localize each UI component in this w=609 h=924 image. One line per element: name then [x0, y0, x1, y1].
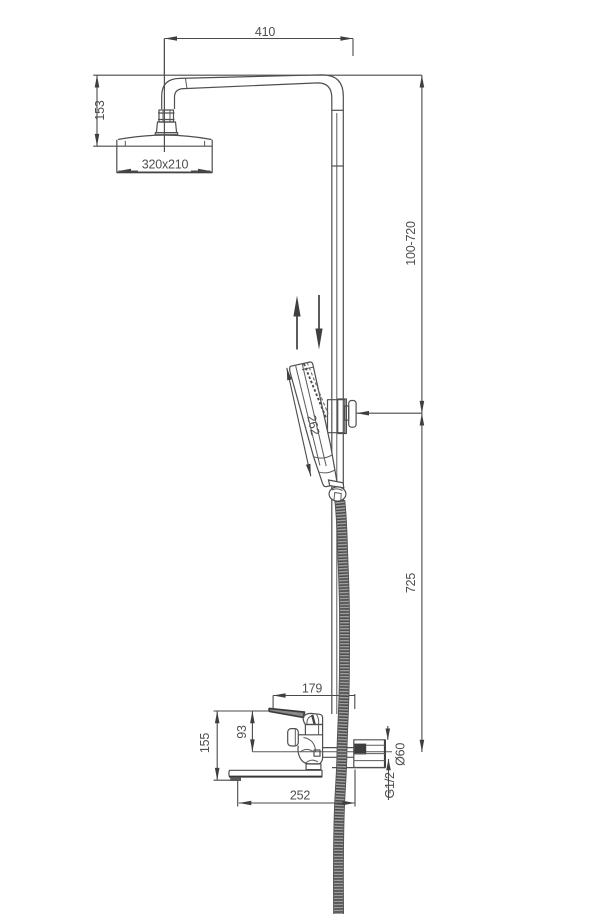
svg-text:Ø60: Ø60 [394, 743, 408, 766]
svg-text:155: 155 [198, 733, 212, 754]
svg-text:153: 153 [93, 100, 107, 121]
svg-text:100-720: 100-720 [404, 221, 418, 266]
svg-text:725: 725 [404, 573, 418, 594]
svg-text:320x210: 320x210 [142, 158, 189, 172]
svg-text:179: 179 [302, 682, 323, 696]
svg-text:410: 410 [255, 25, 276, 39]
svg-text:93: 93 [235, 725, 249, 739]
svg-text:252: 252 [290, 789, 311, 803]
svg-text:G1/2: G1/2 [383, 772, 397, 799]
